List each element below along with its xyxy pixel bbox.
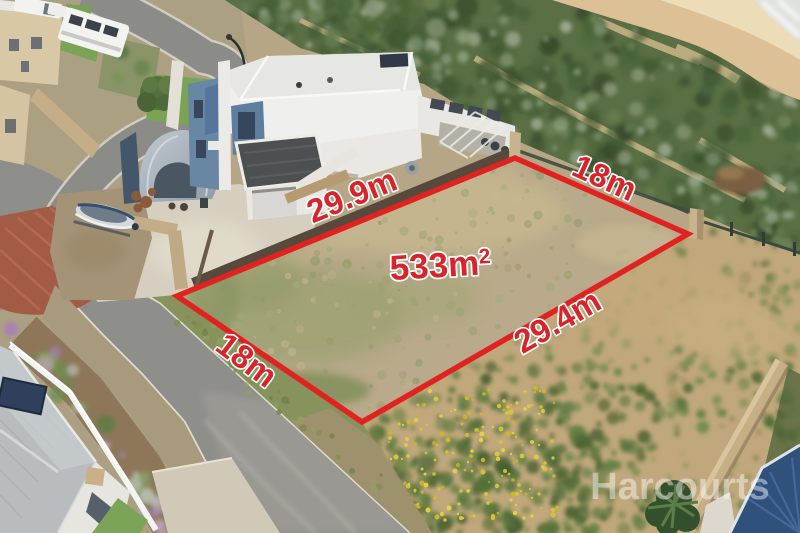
- svg-text:Harcourts: Harcourts: [590, 466, 770, 508]
- svg-text:533m2: 533m2: [389, 243, 492, 288]
